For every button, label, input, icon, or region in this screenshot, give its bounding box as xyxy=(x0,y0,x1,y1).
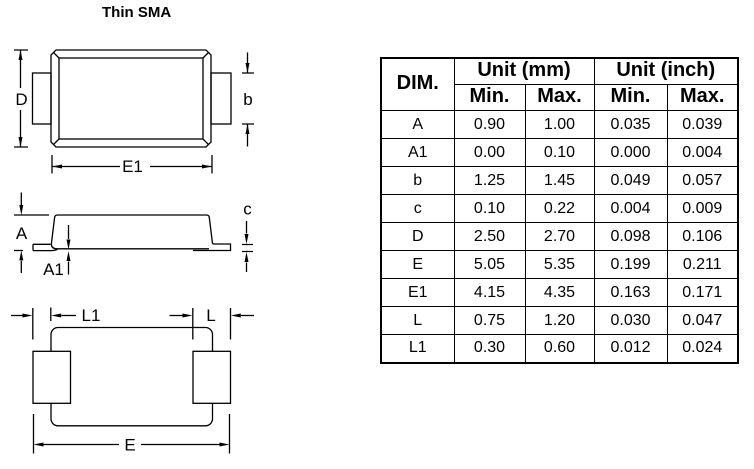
svg-text:D: D xyxy=(15,90,27,109)
svg-text:E: E xyxy=(124,436,135,455)
svg-text:E1: E1 xyxy=(122,157,143,176)
svg-text:b: b xyxy=(243,90,252,109)
svg-text:L1: L1 xyxy=(82,306,101,325)
svg-text:c: c xyxy=(243,200,252,219)
svg-text:L: L xyxy=(206,306,215,325)
svg-text:A: A xyxy=(16,224,28,243)
svg-text:A1: A1 xyxy=(43,260,64,279)
